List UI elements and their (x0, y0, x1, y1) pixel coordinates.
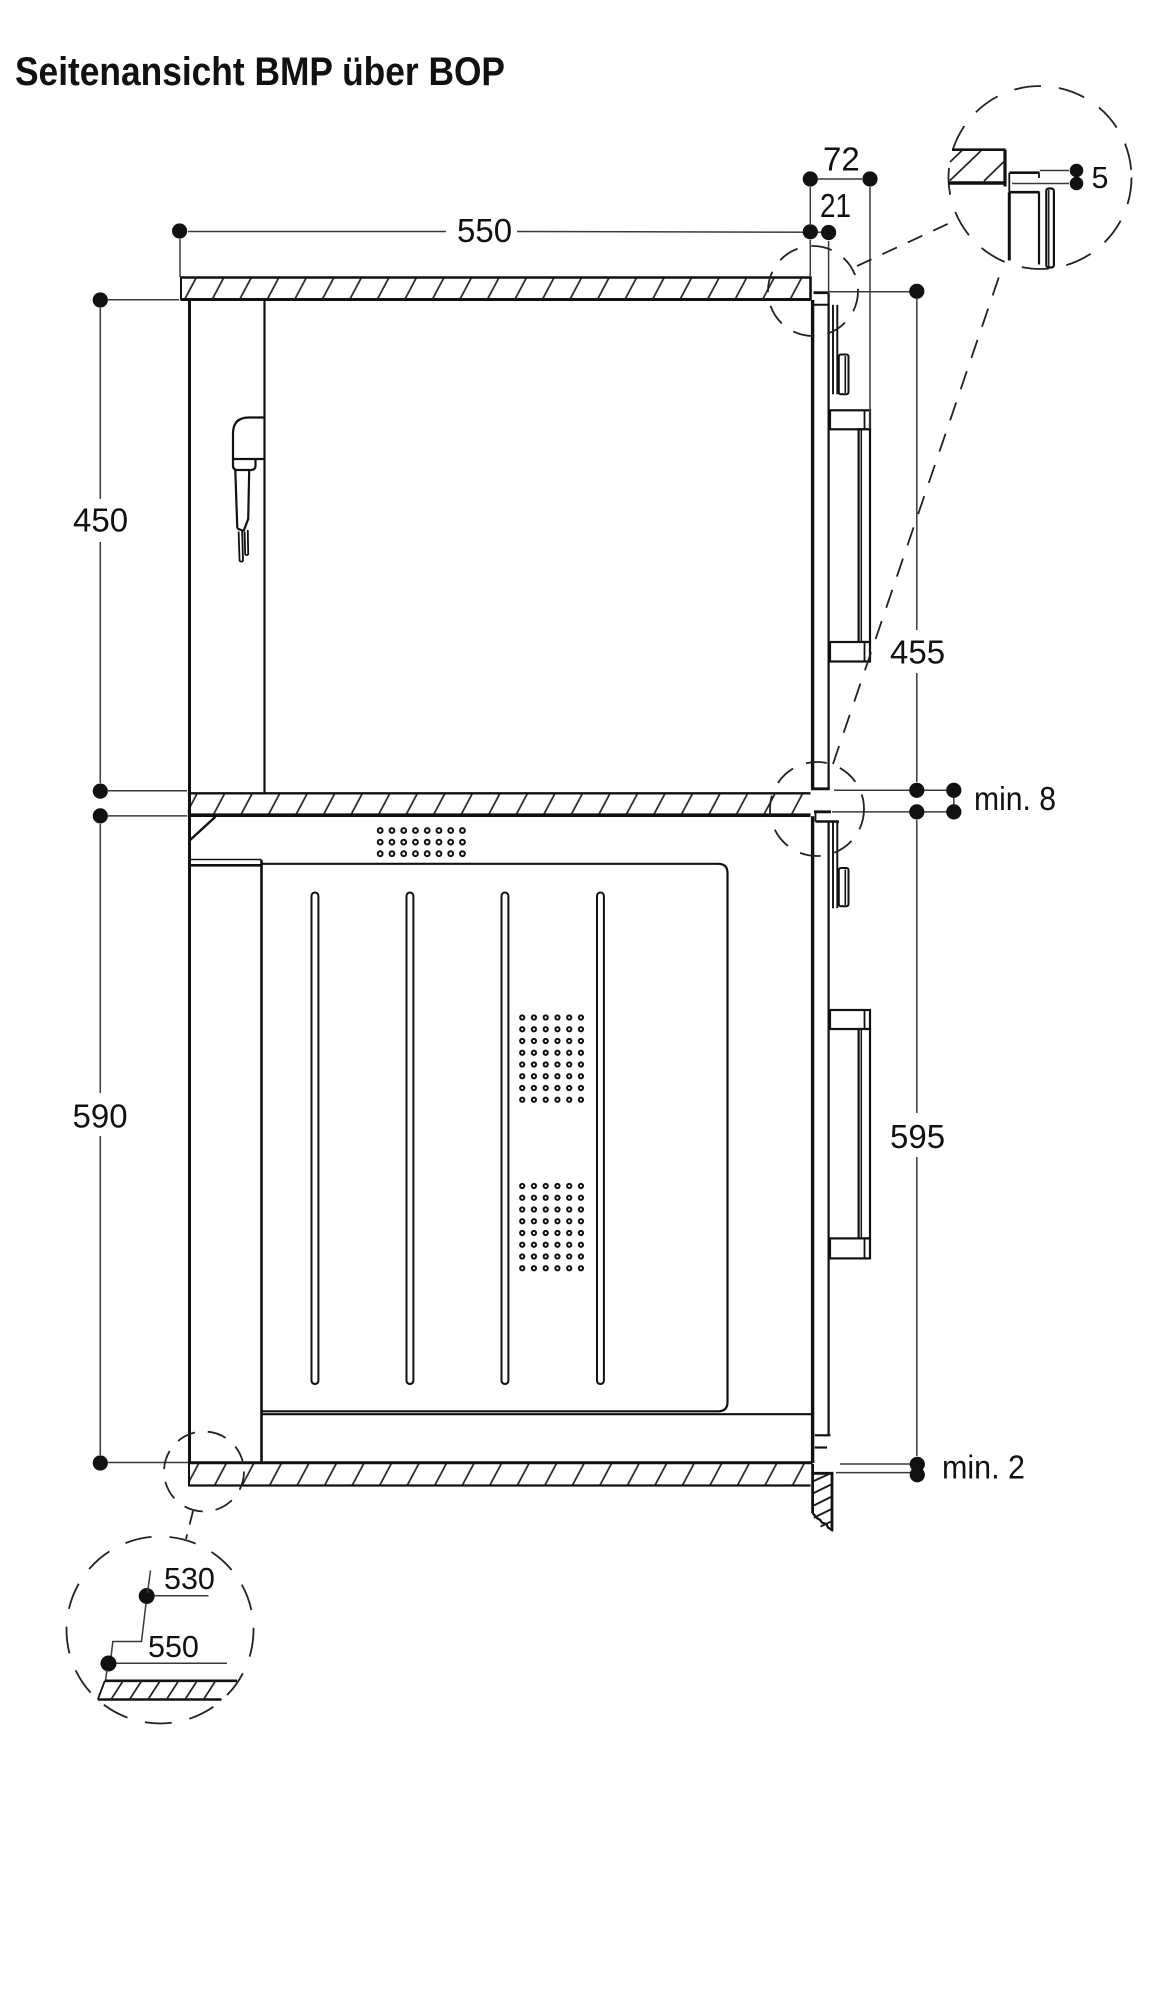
svg-text:450: 450 (73, 502, 128, 539)
svg-text:590: 590 (73, 1097, 128, 1134)
svg-text:530: 530 (164, 1562, 215, 1596)
svg-text:Seitenansicht BMP über BOP: Seitenansicht BMP über BOP (15, 50, 505, 94)
svg-text:5: 5 (1092, 161, 1109, 195)
svg-text:21: 21 (820, 187, 851, 224)
svg-text:72: 72 (823, 141, 860, 178)
svg-text:455: 455 (890, 634, 945, 671)
svg-text:min. 8: min. 8 (974, 780, 1056, 817)
svg-text:595: 595 (890, 1118, 945, 1155)
svg-text:550: 550 (148, 1630, 199, 1664)
svg-text:min. 2: min. 2 (942, 1449, 1025, 1486)
svg-text:550: 550 (457, 212, 512, 249)
